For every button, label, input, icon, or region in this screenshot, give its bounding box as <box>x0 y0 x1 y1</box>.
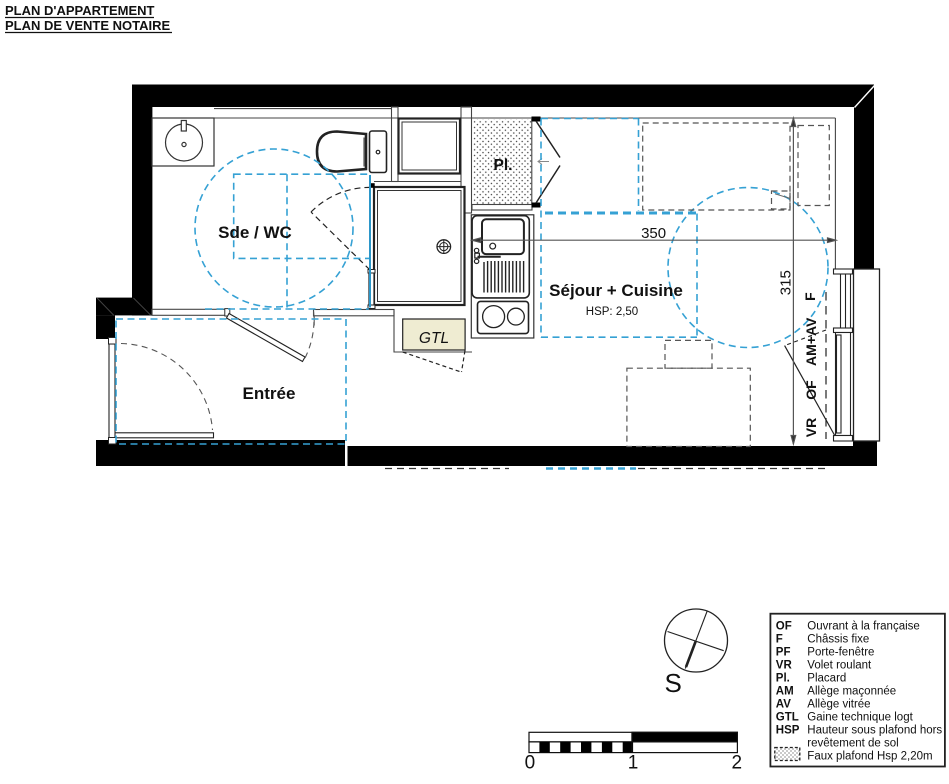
svg-text:GTL: GTL <box>776 712 799 724</box>
svg-text:Volet roulant: Volet roulant <box>807 660 872 672</box>
svg-text:315: 315 <box>778 270 795 295</box>
svg-text:Ouvrant à la française: Ouvrant à la française <box>807 621 920 633</box>
svg-text:Pl.: Pl. <box>494 157 513 174</box>
svg-text:Sde / WC: Sde / WC <box>218 223 292 242</box>
svg-text:GTL: GTL <box>419 330 449 347</box>
svg-text:350: 350 <box>641 225 666 242</box>
svg-text:2: 2 <box>732 753 743 774</box>
svg-text:Allège vitrée: Allège vitrée <box>807 699 870 711</box>
svg-text:Placard: Placard <box>807 673 846 685</box>
svg-text:Porte-fenêtre: Porte-fenêtre <box>807 647 874 659</box>
svg-text:Entrée: Entrée <box>243 384 296 403</box>
svg-text:PLAN D'APPARTEMENT: PLAN D'APPARTEMENT <box>5 3 155 18</box>
svg-text:revêtement de sol: revêtement de sol <box>807 738 898 750</box>
svg-text:AM: AM <box>776 686 794 698</box>
svg-text:Séjour + Cuisine: Séjour + Cuisine <box>549 281 683 300</box>
svg-text:F: F <box>776 634 783 646</box>
svg-text:PF: PF <box>776 647 791 659</box>
svg-text:OF: OF <box>776 621 792 633</box>
svg-text:Châssis fixe: Châssis fixe <box>807 634 869 646</box>
svg-text:VR: VR <box>776 660 793 672</box>
svg-text:OF: OF <box>803 380 819 400</box>
svg-text:PLAN DE VENTE NOTAIRE: PLAN DE VENTE NOTAIRE <box>5 18 170 33</box>
svg-text:1: 1 <box>628 753 639 774</box>
svg-text:0: 0 <box>525 753 536 774</box>
svg-text:S: S <box>665 668 682 698</box>
svg-text:AM+AV: AM+AV <box>803 317 819 366</box>
svg-text:F: F <box>802 292 818 301</box>
svg-text:Faux plafond Hsp 2,20m: Faux plafond Hsp 2,20m <box>807 751 932 763</box>
svg-text:HSP: 2,50: HSP: 2,50 <box>586 306 638 318</box>
svg-text:HSP: HSP <box>776 725 800 737</box>
svg-text:Gaine technique logt: Gaine technique logt <box>807 712 913 724</box>
svg-text:VR: VR <box>803 418 819 437</box>
svg-text:AV: AV <box>776 699 791 711</box>
svg-text:Allège maçonnée: Allège maçonnée <box>807 686 896 698</box>
svg-text:Hauteur sous plafond hors: Hauteur sous plafond hors <box>807 725 942 737</box>
svg-text:Pl.: Pl. <box>776 673 790 685</box>
